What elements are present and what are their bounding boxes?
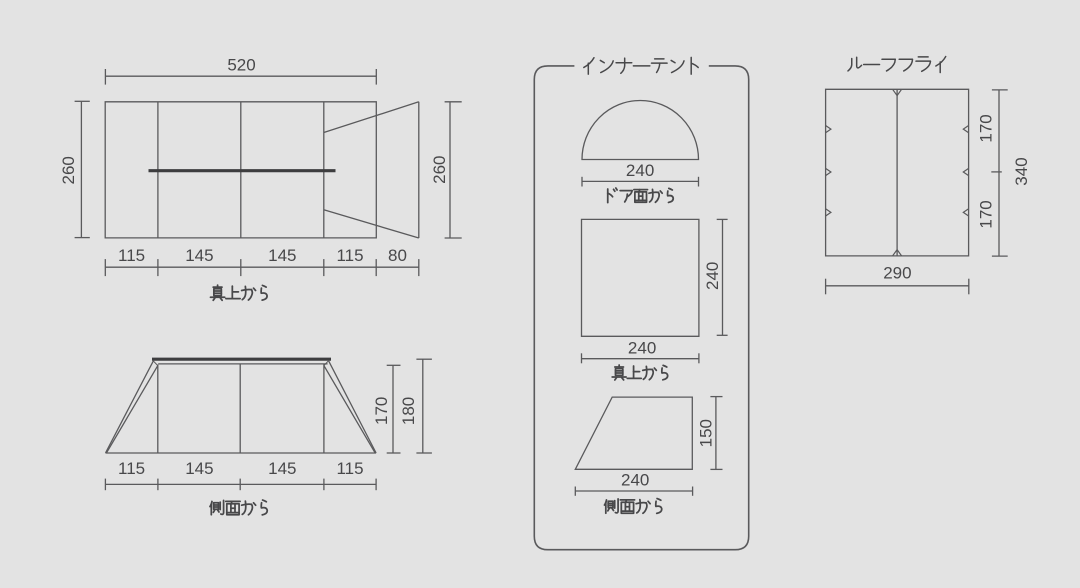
svg-text:240: 240 <box>703 262 722 290</box>
svg-text:340: 340 <box>1012 157 1031 185</box>
svg-text:180: 180 <box>399 397 418 425</box>
svg-text:150: 150 <box>696 419 715 447</box>
svg-text:145: 145 <box>185 246 213 265</box>
svg-text:260: 260 <box>430 156 449 184</box>
svg-text:115: 115 <box>118 459 145 478</box>
svg-text:240: 240 <box>626 161 654 180</box>
svg-text:170: 170 <box>976 114 995 142</box>
svg-text:170: 170 <box>372 397 391 425</box>
svg-text:520: 520 <box>227 56 255 75</box>
svg-text:170: 170 <box>976 200 995 228</box>
svg-text:115: 115 <box>118 246 145 265</box>
svg-text:240: 240 <box>628 339 656 358</box>
svg-text:115: 115 <box>336 246 363 265</box>
svg-text:115: 115 <box>336 459 363 478</box>
svg-text:260: 260 <box>59 156 78 184</box>
svg-text:80: 80 <box>388 246 407 265</box>
svg-text:290: 290 <box>883 263 911 282</box>
svg-text:145: 145 <box>185 459 213 478</box>
svg-text:240: 240 <box>621 471 649 490</box>
svg-text:145: 145 <box>268 246 296 265</box>
svg-text:145: 145 <box>268 459 296 478</box>
